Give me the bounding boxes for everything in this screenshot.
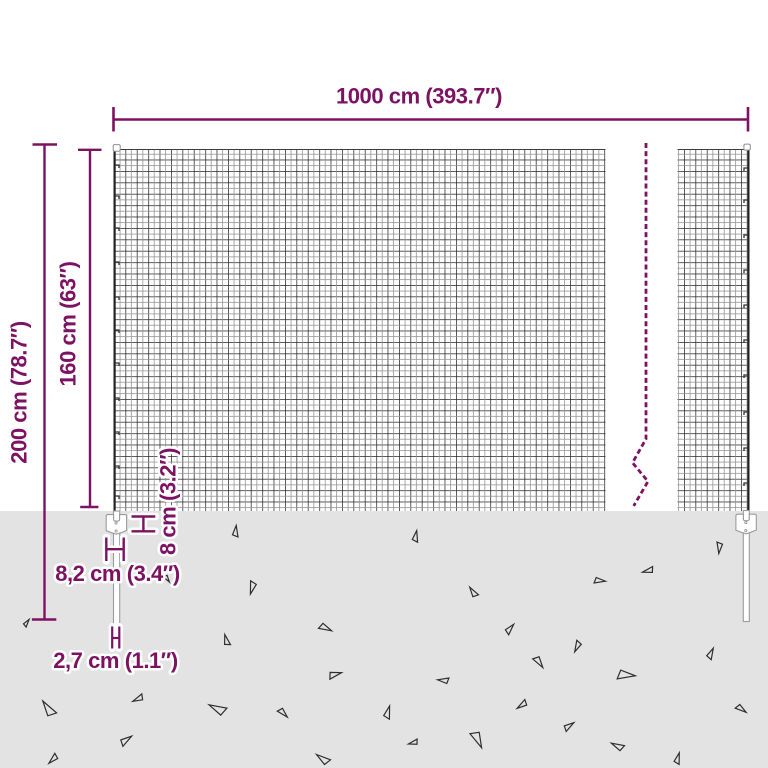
svg-text:2,7 cm (1.1″): 2,7 cm (1.1″) <box>53 648 178 673</box>
svg-text:1000 cm (393.7″): 1000 cm (393.7″) <box>336 84 502 109</box>
svg-text:160 cm (63″): 160 cm (63″) <box>56 261 81 386</box>
svg-text:200 cm (78.7″): 200 cm (78.7″) <box>7 321 32 464</box>
svg-text:8 cm (3.2″): 8 cm (3.2″) <box>156 448 181 555</box>
svg-text:8,2 cm (3.4″): 8,2 cm (3.4″) <box>55 561 180 586</box>
